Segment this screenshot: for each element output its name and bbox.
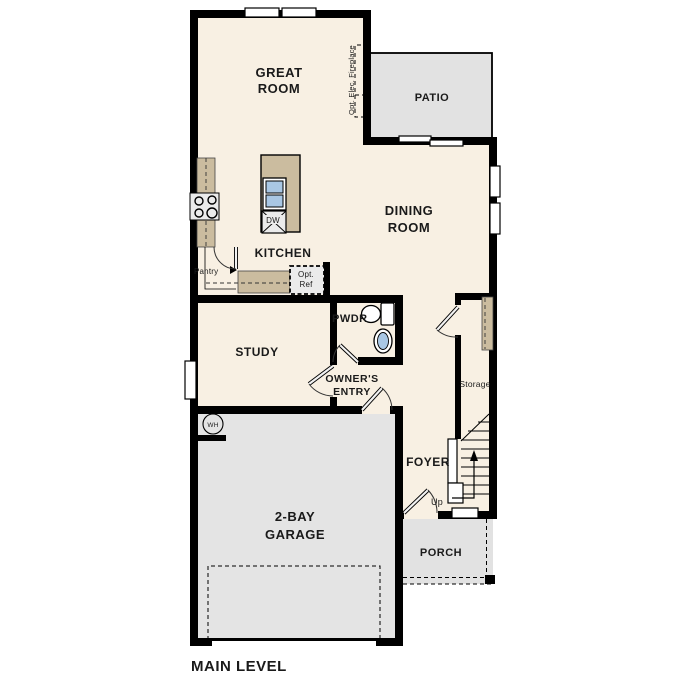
fireplace-label: Opt. Elec. Fireplace [347, 45, 356, 115]
wall-garage-right [395, 406, 403, 646]
study-label: STUDY [235, 345, 278, 359]
wall-garage-top-a [190, 406, 362, 414]
window-right-1 [490, 166, 500, 197]
great-room-label-1: GREAT [255, 65, 302, 80]
great-room-label-2: ROOM [258, 81, 300, 96]
floors [198, 18, 493, 638]
dining-label-1: DINING [385, 203, 434, 218]
toilet-tank [381, 303, 394, 325]
patio-slider-1 [399, 136, 431, 142]
wall-kitchen-bottom [190, 295, 403, 303]
window-top-2 [282, 8, 316, 17]
patio-label: PATIO [415, 92, 449, 104]
window-study-left [185, 361, 196, 399]
pwdr-sink-basin [378, 333, 389, 350]
window-front [452, 508, 478, 518]
floor-plan-page: GREAT ROOM PATIO DINING ROOM KITCHEN STU… [0, 0, 687, 687]
plan-title: MAIN LEVEL [191, 658, 287, 675]
wall-garage-bottom-b [376, 638, 403, 646]
floor-plan: GREAT ROOM PATIO DINING ROOM KITCHEN STU… [0, 0, 687, 687]
wall-storage-left-a [455, 293, 461, 305]
wall-pwdr-right [395, 295, 403, 365]
shelf [482, 297, 493, 350]
dishwasher-label: DW [266, 216, 280, 225]
wall-top [190, 10, 370, 18]
patio-slider-2 [430, 140, 463, 146]
opt-ref-label-2: Ref [299, 280, 313, 289]
wall-greatroom-right [363, 10, 371, 144]
window-top-1 [245, 8, 279, 17]
storage-shelf [482, 297, 493, 350]
window-right-2 [490, 203, 500, 234]
wall-wh-alcove [197, 435, 226, 441]
storage-label: Storage [459, 379, 490, 389]
stairs-up-label: Up [431, 497, 443, 507]
stair-rail-2 [448, 483, 463, 503]
porch-label: PORCH [420, 547, 462, 559]
dining-label-2: ROOM [388, 220, 430, 235]
pwdr-label: PWDR [332, 313, 368, 325]
garage-label-2: GARAGE [265, 527, 325, 542]
kitchen-counter-bottom [238, 271, 290, 293]
wall-study-right-a [330, 295, 337, 365]
front-door-opening [404, 511, 438, 519]
sink-basin-1 [266, 181, 283, 193]
garage-floor [198, 414, 395, 638]
garage-door-line [212, 638, 376, 641]
foyer-label: FOYER [406, 455, 450, 469]
owners-entry-label-1: OWNER'S [325, 373, 378, 385]
garage-label-1: 2-BAY [275, 509, 315, 524]
owners-entry-label-2: ENTRY [333, 386, 371, 398]
porch-corner-post [485, 575, 495, 584]
pantry-label: Pantry [194, 267, 218, 276]
opt-ref-label-1: Opt. [298, 270, 314, 279]
wall-garage-bottom-a [190, 638, 212, 646]
water-heater-label: WH [207, 422, 218, 429]
sink-basin-2 [266, 195, 283, 207]
wall-left [190, 10, 198, 646]
kitchen-label: KITCHEN [255, 246, 312, 260]
